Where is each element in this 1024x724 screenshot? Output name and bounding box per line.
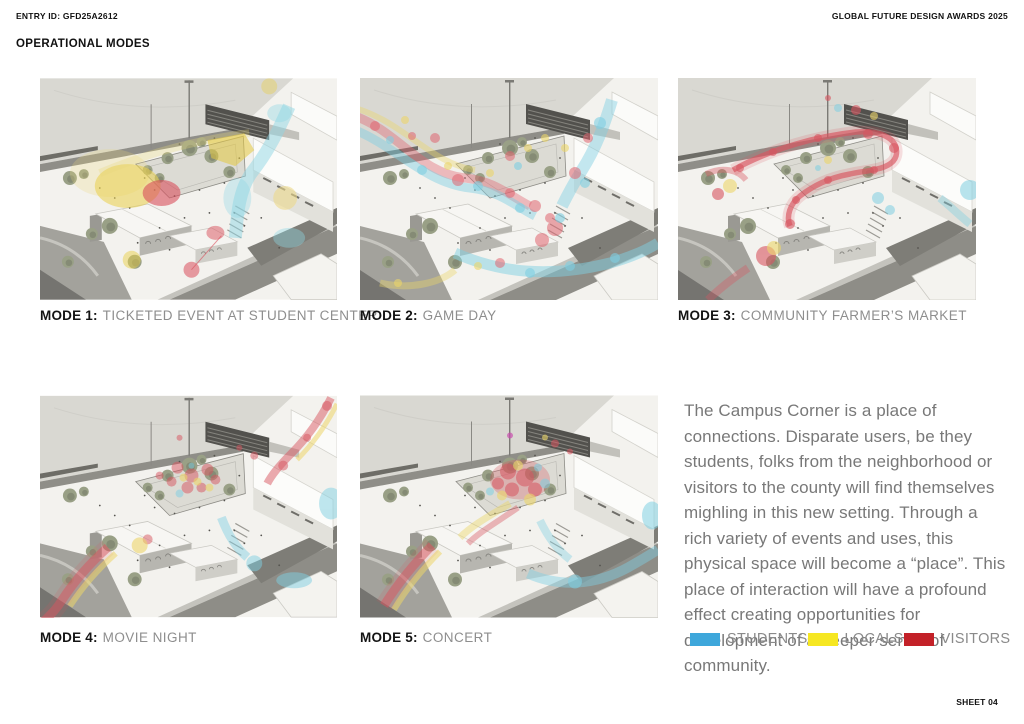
mode-4-panel — [40, 395, 337, 618]
page-title: OPERATIONAL MODES — [16, 38, 150, 50]
mode-5-title: CONCERT — [423, 630, 493, 645]
locals-label: LOCALS — [845, 631, 904, 647]
mode-1-label: MODE 1: — [40, 308, 98, 323]
students-color-swatch — [690, 633, 720, 646]
award-title: GLOBAL FUTURE DESIGN AWARDS 2025 — [832, 11, 1008, 21]
mode-3-title: COMMUNITY FARMER’S MARKET — [741, 308, 967, 323]
mode-2-title: GAME DAY — [423, 308, 497, 323]
mode-5-rendering — [360, 395, 658, 618]
mode-4-label: MODE 4: — [40, 630, 98, 645]
mode-3-panel — [678, 78, 976, 300]
mode-2-caption: MODE 2:GAME DAY — [360, 308, 497, 323]
legend-item-locals: LOCALS — [808, 631, 904, 647]
locals-color-swatch — [808, 633, 838, 646]
mode-1-title: TICKETED EVENT AT STUDENT CENTER — [103, 308, 378, 323]
mode-3-caption: MODE 3:COMMUNITY FARMER’S MARKET — [678, 308, 967, 323]
mode-3-rendering — [678, 78, 976, 300]
entry-id: ENTRY ID: GFD25A2612 — [16, 11, 118, 21]
mode-3-label: MODE 3: — [678, 308, 736, 323]
mode-2-panel — [360, 78, 658, 300]
mode-2-label: MODE 2: — [360, 308, 418, 323]
user-legend: STUDENTS LOCALS VISITORS — [690, 631, 1008, 647]
mode-1-panel — [40, 78, 337, 300]
mode-4-caption: MODE 4:MOVIE NIGHT — [40, 630, 197, 645]
mode-4-rendering — [40, 395, 337, 618]
mode-4-title: MOVIE NIGHT — [103, 630, 197, 645]
mode-5-caption: MODE 5:CONCERT — [360, 630, 492, 645]
visitors-label: VISITORS — [941, 631, 1011, 647]
legend-item-students: STUDENTS — [690, 631, 808, 647]
students-label: STUDENTS — [727, 631, 808, 647]
presentation-sheet: ENTRY ID: GFD25A2612 GLOBAL FUTURE DESIG… — [0, 0, 1024, 724]
visitors-color-swatch — [904, 633, 934, 646]
sheet-number: SHEET 04 — [956, 697, 998, 707]
mode-2-rendering — [360, 78, 658, 300]
mode-5-panel — [360, 395, 658, 618]
legend-item-visitors: VISITORS — [904, 631, 1011, 647]
mode-5-label: MODE 5: — [360, 630, 418, 645]
mode-1-rendering — [40, 78, 337, 300]
mode-1-caption: MODE 1:TICKETED EVENT AT STUDENT CENTER — [40, 308, 378, 323]
